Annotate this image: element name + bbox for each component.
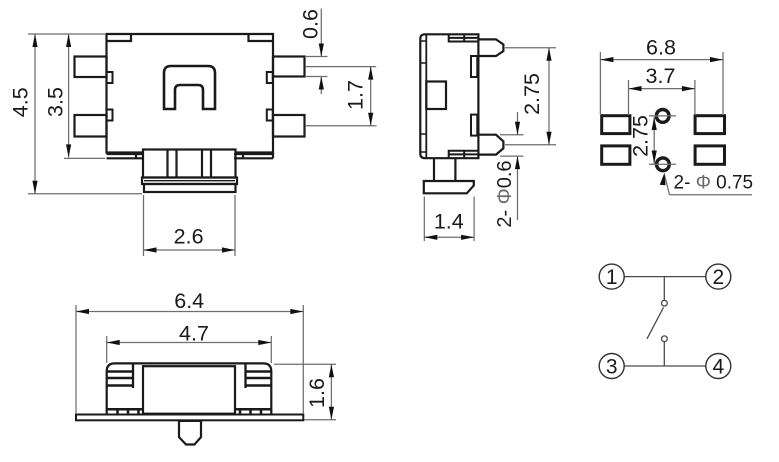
svg-text:1.7: 1.7: [344, 80, 368, 110]
svg-text:3.7: 3.7: [646, 64, 676, 88]
svg-text:6.8: 6.8: [646, 36, 676, 60]
svg-text:4.7: 4.7: [179, 321, 209, 345]
svg-text:0.6: 0.6: [298, 9, 322, 39]
svg-text:1: 1: [606, 266, 618, 289]
svg-text:2.75: 2.75: [520, 73, 544, 115]
svg-text:2: 2: [712, 266, 724, 289]
svg-text:3: 3: [606, 356, 618, 379]
svg-text:1.4: 1.4: [434, 210, 464, 234]
svg-text:2- Φ0.6: 2- Φ0.6: [494, 160, 516, 227]
svg-text:2.6: 2.6: [174, 225, 204, 249]
svg-text:6.4: 6.4: [174, 289, 204, 313]
svg-text:2.75: 2.75: [629, 115, 653, 157]
svg-text:3.5: 3.5: [44, 87, 68, 117]
svg-text:4: 4: [712, 356, 724, 379]
svg-text:4.5: 4.5: [9, 87, 33, 117]
svg-text:2- Φ 0.75: 2- Φ 0.75: [674, 173, 754, 194]
svg-text:1.6: 1.6: [305, 378, 329, 408]
